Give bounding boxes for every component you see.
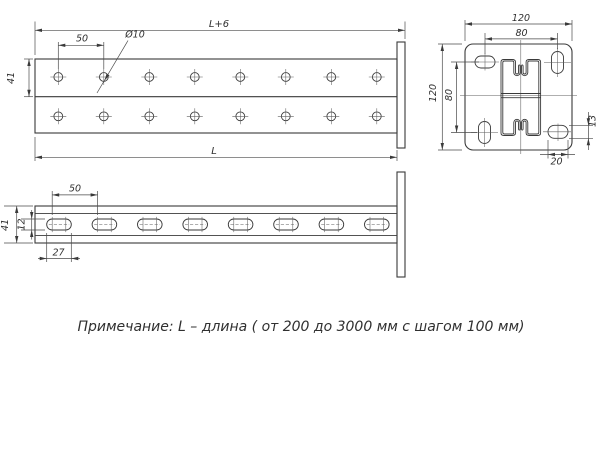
hole-mark	[187, 69, 203, 85]
dim-label-channel-height: 41	[6, 72, 17, 84]
dim-length: L	[35, 137, 397, 161]
hole-mark	[278, 69, 294, 85]
hole-mark	[369, 108, 385, 124]
end-plate-side	[397, 172, 405, 277]
technical-drawing-page: L+6 50 Ø10 41 L	[0, 0, 600, 450]
slot-mark	[274, 217, 299, 232]
hole-mark	[50, 108, 66, 124]
dim-hole-spacing-horizontal: 80	[485, 28, 558, 54]
slot-mark	[138, 217, 163, 232]
dim-label-hole-spacing-h: 80	[515, 28, 527, 39]
dim-slot-pitch: 50	[52, 184, 97, 216]
dim-channel-height-front: 41	[6, 59, 33, 97]
hole-mark	[141, 108, 157, 124]
drawing-note: Примечание: L – длина ( от 200 до 3000 м…	[77, 319, 524, 335]
dim-label-hole-pitch: 50	[76, 34, 88, 45]
end-view: 120 80 120 80	[428, 13, 599, 168]
hole-mark	[50, 69, 66, 85]
channel-plan-outline	[35, 206, 397, 243]
dim-label-plate-width: 120	[512, 13, 530, 24]
hole-mark	[323, 108, 339, 124]
hole-mark	[141, 69, 157, 85]
dim-hole-pitch-front: 50	[58, 34, 104, 70]
profile-hook-top-left	[501, 60, 520, 98]
end-plate-edge	[397, 42, 405, 148]
dim-label-overall-length: L+6	[209, 19, 229, 30]
slot-mark	[319, 217, 344, 232]
dim-label-hole-diameter: Ø10	[124, 30, 145, 41]
hole-mark	[232, 108, 248, 124]
hole-mark	[323, 69, 339, 85]
dim-slot-width-plan: 12	[17, 210, 46, 240]
hole-mark	[278, 108, 294, 124]
strut-body-outline	[35, 59, 397, 133]
dim-label-slot-width-end: 13	[588, 115, 599, 127]
profile-hook-top-right	[522, 60, 541, 98]
slot-mark	[228, 217, 253, 232]
dim-overall-length: L+6	[35, 19, 405, 55]
dim-label-channel-width: 41	[0, 219, 11, 231]
front-view: L+6 50 Ø10 41 L	[6, 19, 405, 161]
dim-hole-diameter: Ø10	[97, 30, 145, 94]
profile-hook-bottom-left	[501, 98, 520, 136]
slot-mark	[183, 217, 208, 232]
dim-label-hole-spacing-v: 80	[444, 89, 455, 101]
plan-view-body	[35, 172, 405, 277]
hole-mark	[187, 108, 203, 124]
front-view-body	[35, 42, 405, 148]
dim-label-slot-length-end: 20	[550, 157, 562, 168]
hole-mark	[96, 108, 112, 124]
drawing-canvas: L+6 50 Ø10 41 L	[0, 0, 600, 450]
dim-slot-width-end: 13	[569, 112, 599, 150]
dim-slot-length-end: 20	[540, 140, 575, 168]
dim-slot-length-plan: 27	[38, 233, 80, 262]
plan-view: 50 41 12 27	[0, 172, 405, 277]
slot-mark	[92, 217, 117, 232]
hole-mark	[369, 69, 385, 85]
profile-hook-bottom-right	[522, 98, 541, 136]
dim-hole-spacing-vertical: 80	[444, 62, 479, 133]
dim-label-plate-height: 120	[428, 84, 439, 102]
slot-mark	[365, 217, 390, 232]
dim-label-slot-width-plan: 12	[17, 218, 28, 230]
plan-view-slots	[47, 217, 389, 232]
dim-label-slot-length-plan: 27	[52, 248, 64, 259]
mount-plate-outline	[465, 44, 572, 150]
dim-label-length: L	[211, 146, 217, 157]
hole-mark	[232, 69, 248, 85]
dim-label-slot-pitch: 50	[69, 184, 81, 195]
slot-mark	[47, 217, 72, 232]
